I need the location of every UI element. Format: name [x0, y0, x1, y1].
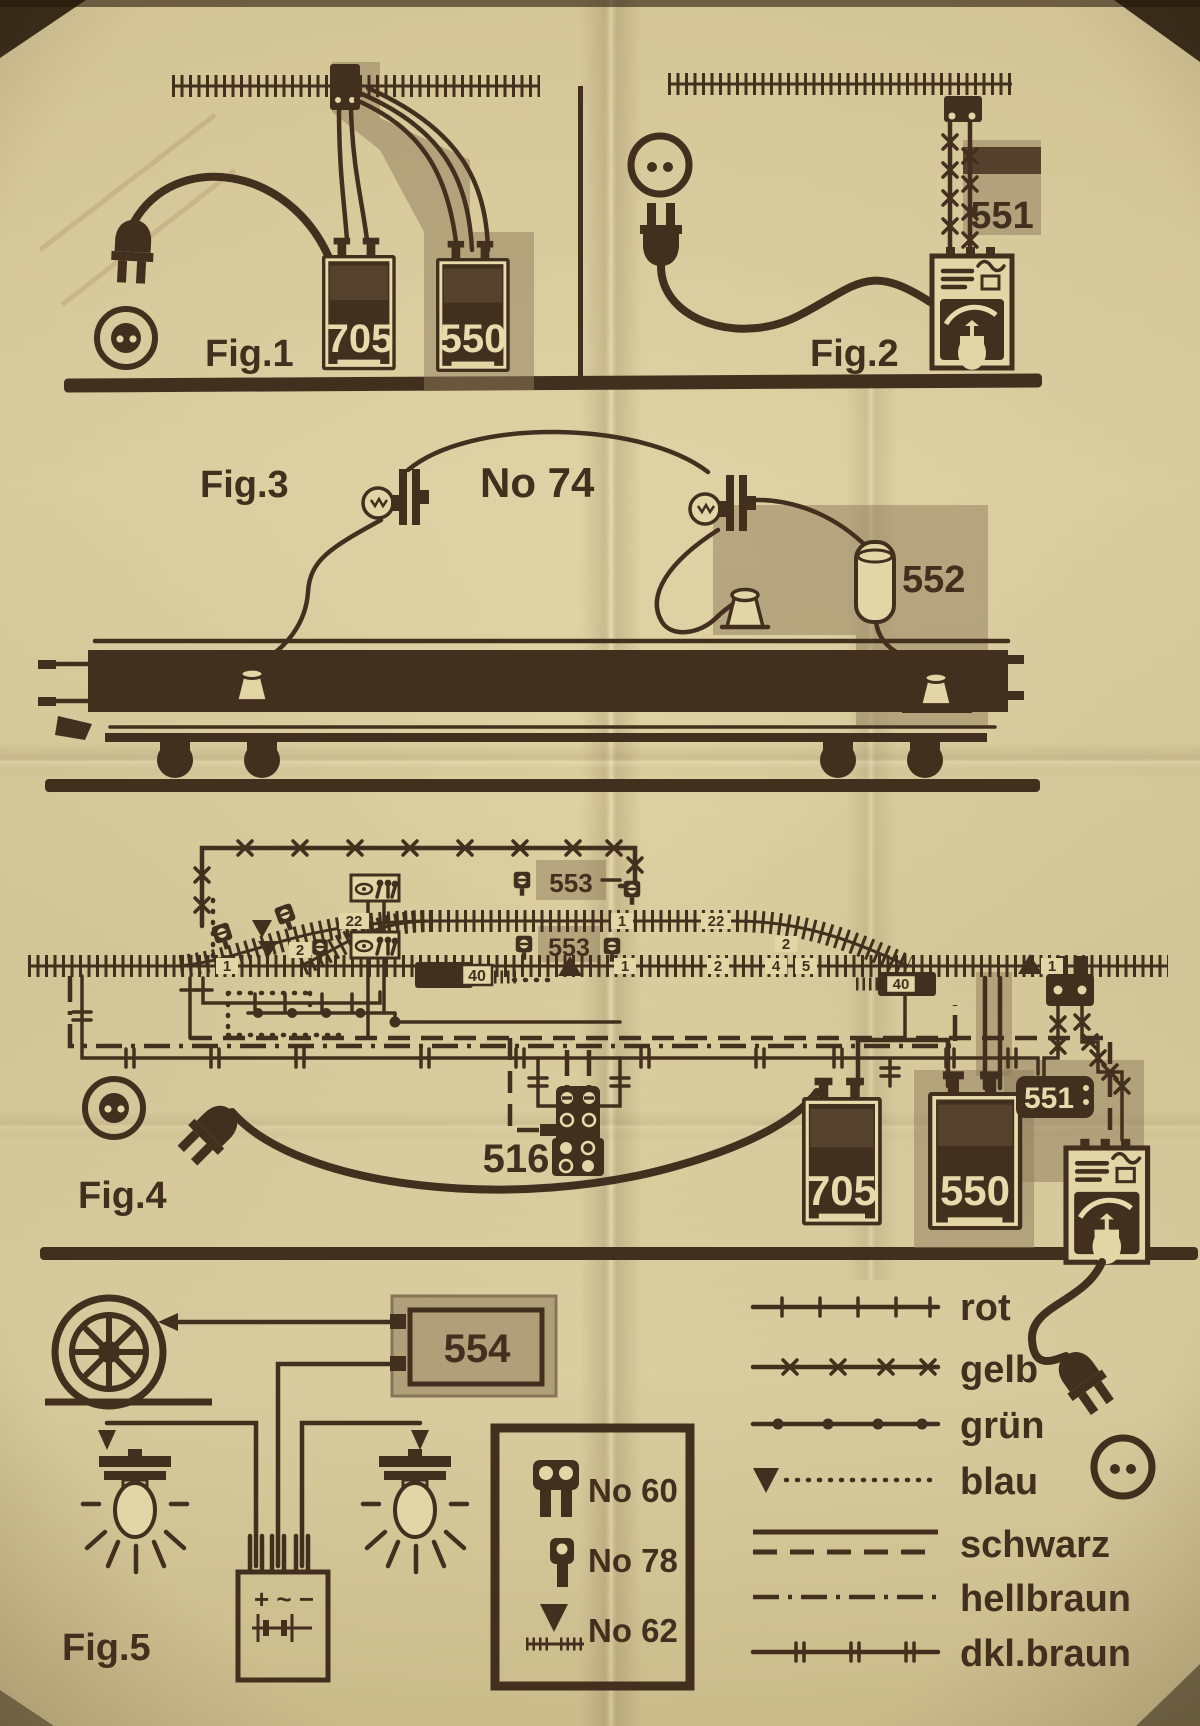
fig5-terminal-marks: + ~ −	[254, 1584, 314, 1614]
fig4-transformer-label: 705	[807, 1167, 877, 1214]
part-no78-label: No 78	[588, 1542, 678, 1579]
svg-text:5: 5	[802, 958, 810, 975]
svg-text:553: 553	[549, 868, 592, 898]
fig1-caption: Fig.1	[205, 333, 294, 375]
svg-text:grün: grün	[960, 1405, 1044, 1447]
svg-text:hellbraun: hellbraun	[960, 1578, 1131, 1620]
fig3-device-552-body	[856, 542, 894, 622]
svg-text:gelb: gelb	[960, 1349, 1038, 1391]
fig1-device-label: 550	[440, 317, 507, 361]
svg-text:40: 40	[893, 976, 910, 993]
svg-text:2: 2	[782, 936, 790, 953]
svg-text:dkl.braun: dkl.braun	[960, 1633, 1131, 1675]
svg-text:rot: rot	[960, 1287, 1011, 1329]
fig4-caption: Fig.4	[78, 1175, 167, 1217]
divider-vertical	[578, 86, 583, 384]
svg-text:1: 1	[223, 958, 231, 975]
svg-text:blau: blau	[960, 1461, 1038, 1503]
scanned-sheet: 705 550 Fig.1 551 Fig.2	[0, 0, 1200, 1726]
fig3-caption: Fig.3	[200, 464, 289, 506]
divider-2	[45, 779, 1040, 792]
svg-text:22: 22	[346, 913, 363, 930]
svg-text:553: 553	[548, 934, 590, 962]
fig4-distributor-label: 516	[483, 1137, 550, 1181]
svg-text:1: 1	[621, 958, 629, 975]
part-no62-label: No 62	[588, 1612, 678, 1649]
part-no60-label: No 60	[588, 1472, 678, 1509]
fig4-signal-plate	[351, 932, 399, 958]
fig1-track-connector	[330, 64, 360, 110]
fig5-caption: Fig.5	[62, 1627, 151, 1669]
svg-text:1: 1	[1048, 958, 1056, 975]
fig5-device-label: 554	[444, 1327, 511, 1371]
divider-3	[40, 1247, 1198, 1260]
svg-text:40: 40	[468, 968, 486, 985]
fig1-transformer-label: 705	[327, 317, 394, 361]
fig2-device-label: 551	[970, 195, 1033, 237]
svg-text:2: 2	[296, 942, 304, 959]
fig2-caption: Fig.2	[810, 333, 899, 375]
svg-text:1: 1	[618, 913, 626, 930]
svg-text:schwarz: schwarz	[960, 1524, 1110, 1566]
fig3-part-label: No 74	[480, 459, 595, 506]
fig4-controller-label: 551	[1024, 1082, 1074, 1115]
fig4-controller	[1066, 1139, 1148, 1264]
fig3-device-label: 552	[902, 559, 965, 601]
fig2-controller	[932, 247, 1012, 370]
fig4-signal-plate	[351, 875, 399, 901]
fig5-device-554: 554	[390, 1296, 556, 1396]
fig4-device-label: 550	[940, 1167, 1010, 1214]
svg-text:4: 4	[772, 958, 781, 975]
svg-text:22: 22	[708, 913, 725, 930]
svg-text:2: 2	[714, 958, 722, 975]
